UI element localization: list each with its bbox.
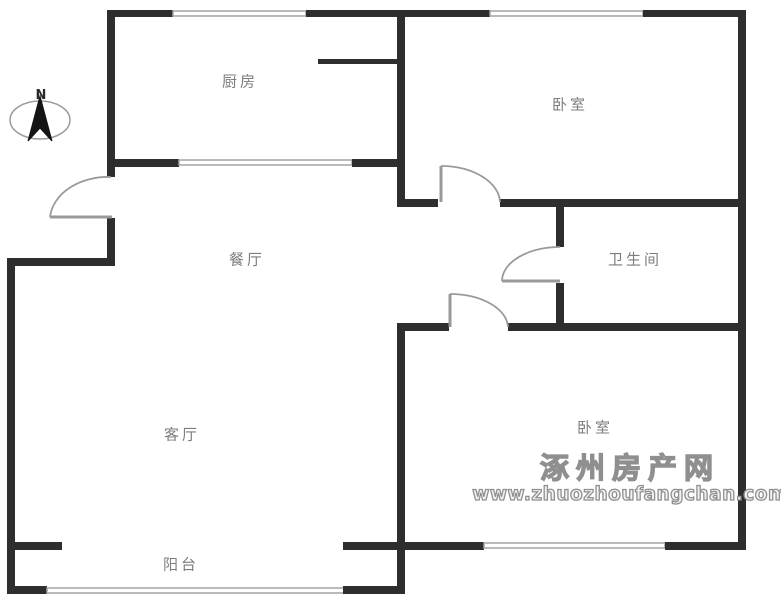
entry-door-swing-arc [50,177,111,217]
wall-balcony-divider-right [343,542,405,550]
watermark-site-name: 涿州房产网 [540,453,720,485]
window-kitchen-top [173,11,306,16]
window-balcony [47,588,348,593]
window-bedroom-bottom [484,543,665,548]
window-bedroom-top [490,11,643,16]
bedroom-top-door-swing-arc [441,166,500,202]
compass-north-label: N [36,88,47,103]
wall-living-bedroom-left [397,323,449,331]
wall-center-vertical-lower [397,327,405,594]
wall-bathroom-bottom [556,323,746,331]
wall-kitchen-stub [318,59,400,64]
room-label-living: 客厅 [164,424,200,445]
floor-plan-drawing: N [0,0,781,600]
room-label-balcony: 阳台 [163,554,199,575]
compass: N [10,88,70,141]
room-label-bathroom: 卫生间 [608,249,662,270]
wall-balcony-divider [7,542,62,550]
bedroom-bottom-door-swing-arc [450,294,508,327]
wall-left-upper [107,10,115,177]
wall-living-bedroom-right [508,323,564,331]
wall-kitchen-bottom-left [110,159,179,167]
wall-kitchen-bottom-right [352,159,405,167]
entry-door [50,177,112,217]
room-label-bedroom-bottom: 卧室 [577,417,613,438]
room-label-kitchen: 厨房 [222,71,258,92]
wall-balcony-bottom-right [343,586,405,594]
watermark: 涿州房产网 www.zhuozhoufangchan.com [500,453,760,505]
wall-top-segment-3 [643,10,746,17]
wall-living-top-left [7,258,115,266]
floor-plan: N 厨房 卧室 餐厅 卫生间 客厅 卧室 阳台 涿州房产网 www.zhuozh… [0,0,781,600]
bedroom-top-door [441,166,500,202]
bathroom-door [502,247,560,281]
wall-balcony-bottom-left [7,586,47,594]
room-label-dining: 餐厅 [229,249,265,270]
wall-top-segment-1 [107,10,173,17]
bathroom-door-swing-arc [502,247,560,281]
wall-hall-top-right [500,199,746,207]
bedroom-bottom-door [450,294,508,327]
wall-bedroom-bottom-segment-2 [665,542,746,550]
wall-center-vertical-upper [397,10,405,207]
watermark-site-url: www.zhuozhoufangchan.com [472,485,781,505]
wall-bathroom-left-upper [556,207,564,247]
wall-hall-top-left [397,199,438,207]
wall-bedroom-bottom-segment-1 [397,542,484,550]
window-kitchen-slider [179,160,352,165]
room-label-bedroom-top: 卧室 [552,94,588,115]
